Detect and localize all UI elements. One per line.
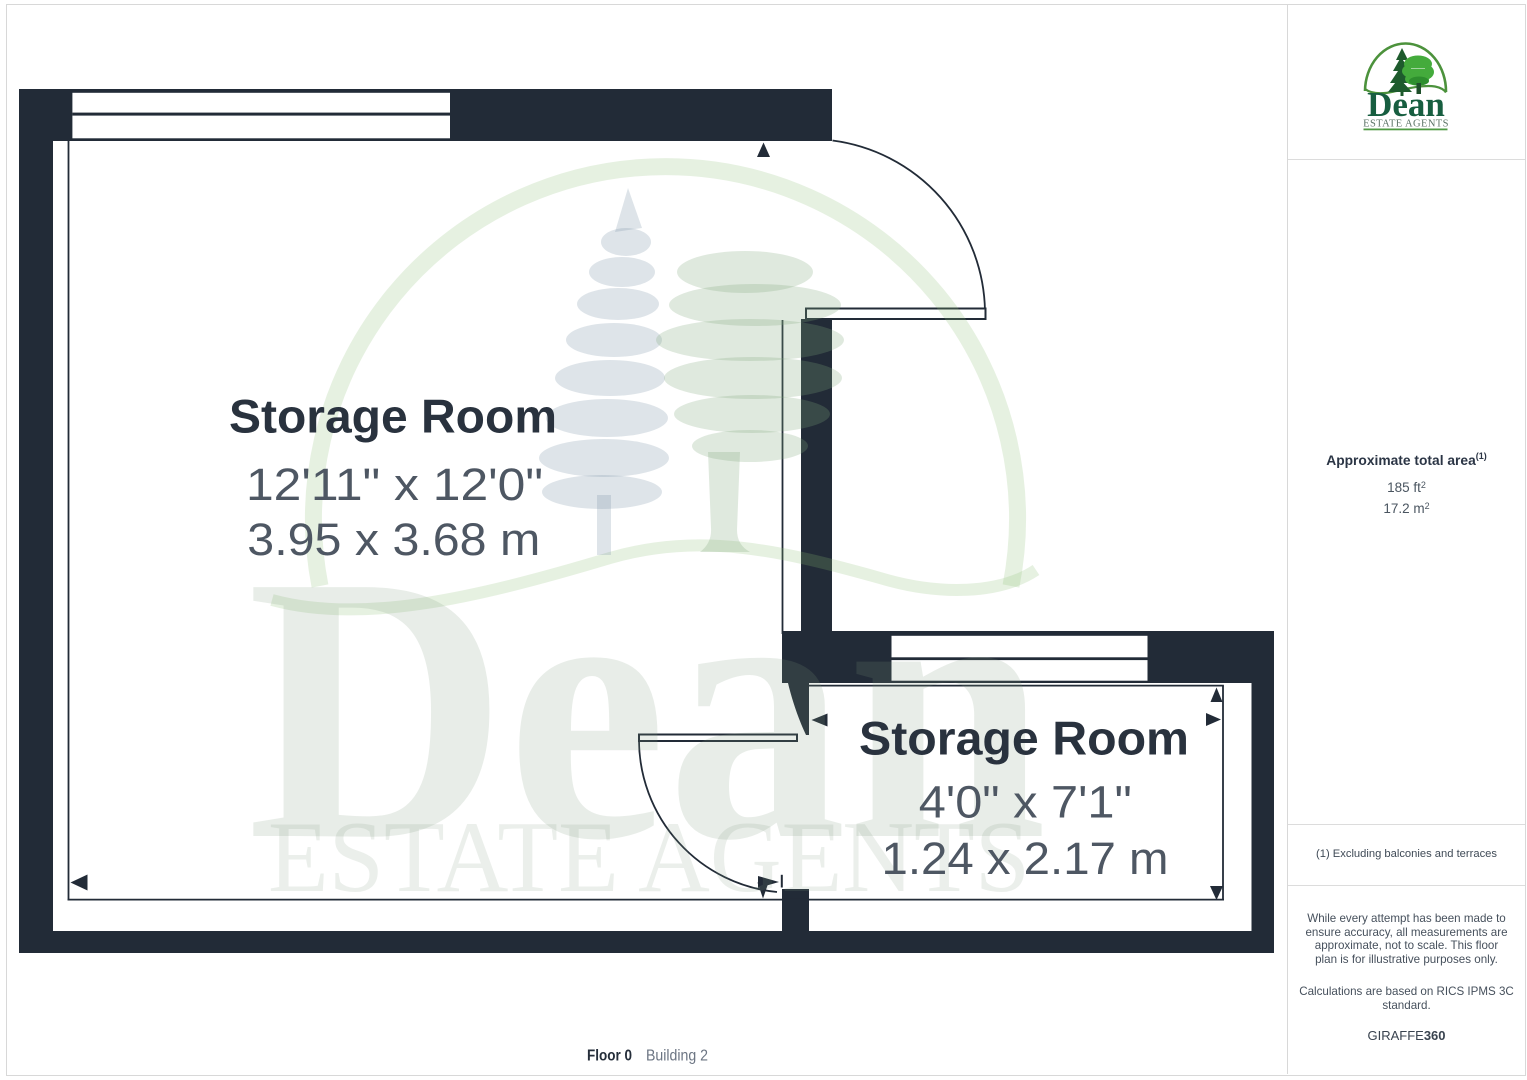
svg-text:Building 2: Building 2 bbox=[646, 1048, 708, 1065]
svg-text:4'0" x 7'1": 4'0" x 7'1" bbox=[919, 777, 1132, 828]
svg-text:1.24 x 2.17 m: 1.24 x 2.17 m bbox=[882, 833, 1169, 884]
svg-text:Floor 0: Floor 0 bbox=[587, 1048, 632, 1065]
svg-text:ESTATE AGENTS: ESTATE AGENTS bbox=[1363, 119, 1449, 130]
svg-text:Storage Room: Storage Room bbox=[229, 390, 557, 443]
svg-text:3.95 x 3.68 m: 3.95 x 3.68 m bbox=[247, 514, 540, 565]
svg-text:Storage Room: Storage Room bbox=[859, 712, 1189, 765]
svg-text:12'11" x 12'0": 12'11" x 12'0" bbox=[246, 459, 543, 510]
